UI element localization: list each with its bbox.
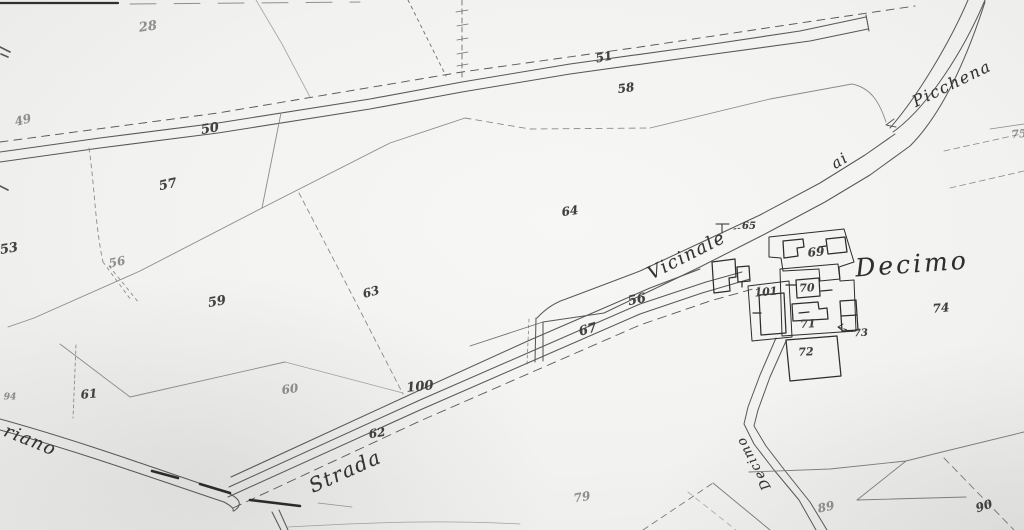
parcel-56-road: 56 xyxy=(627,292,647,308)
road-name-ai: ai xyxy=(829,150,851,172)
parcel-58: 58 xyxy=(617,81,635,95)
parcel-60: 60 xyxy=(281,382,299,396)
parcel-89: 89 xyxy=(817,499,836,514)
parcel-49: 49 xyxy=(13,112,32,128)
parcel-73: 73 xyxy=(854,329,868,340)
parcel-28: 28 xyxy=(138,19,158,34)
parcel-61: 61 xyxy=(80,387,98,400)
road-name-decimo: Decimo xyxy=(734,434,773,492)
road-name-strada: Strada xyxy=(306,446,384,496)
parcel-67: 67 xyxy=(578,321,599,338)
parcel-59: 59 xyxy=(207,294,227,310)
parcel-90: 90 xyxy=(974,498,994,515)
parcel-53: 53 xyxy=(0,241,19,257)
parcel-64: 64 xyxy=(561,204,579,218)
road-parcel-51: 51 xyxy=(595,49,614,64)
parcel-65: 65 xyxy=(742,222,756,232)
parcel-71: 71 xyxy=(800,318,816,330)
road-name-picchena: Picchena xyxy=(910,58,994,110)
parcel-100: 100 xyxy=(406,379,434,395)
parcel-79: 79 xyxy=(573,490,592,505)
road-name-riano: riano xyxy=(1,422,59,459)
settlement-decimo: Decimo xyxy=(854,248,969,281)
road-parcel-50: 50 xyxy=(200,121,220,137)
parcel-56-west: 56 xyxy=(108,254,127,269)
parcel-63: 63 xyxy=(361,284,380,300)
parcel-70: 70 xyxy=(799,282,815,294)
parcel-57: 57 xyxy=(158,177,178,193)
parcel-69: 69 xyxy=(807,245,825,258)
parcel-94: 94 xyxy=(4,394,17,403)
map-labels-layer: 2849505158575356596364566710062606194798… xyxy=(0,0,1024,530)
parcel-75: 75 xyxy=(1011,128,1024,140)
parcel-74: 74 xyxy=(932,301,950,314)
parcel-62: 62 xyxy=(368,426,387,441)
map-canvas: 2849505158575356596364566710062606194798… xyxy=(0,0,1024,530)
road-name-vicinale: Vicinale xyxy=(645,229,729,284)
parcel-72: 72 xyxy=(798,346,814,358)
parcel-101: 101 xyxy=(754,286,778,299)
